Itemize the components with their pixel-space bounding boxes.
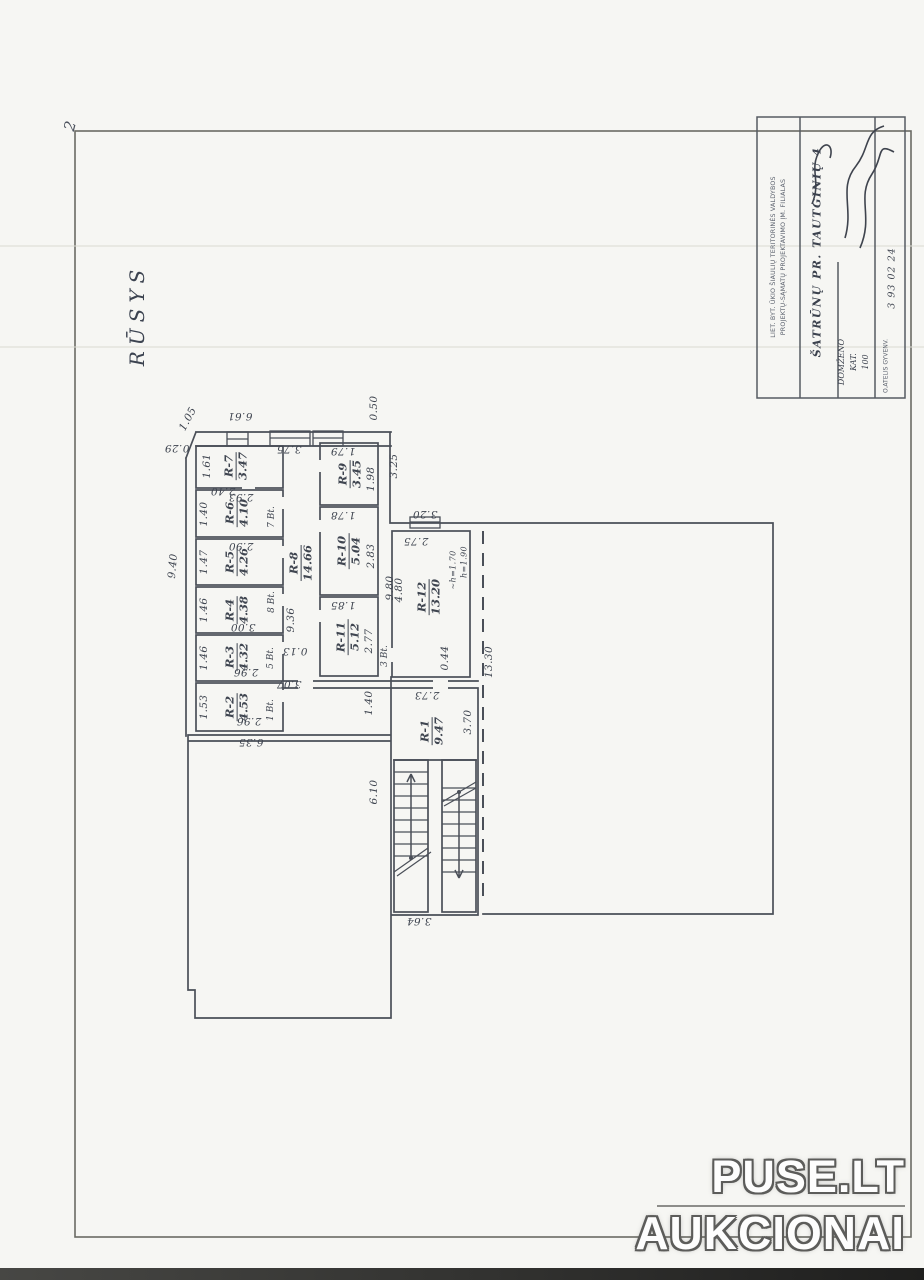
watermark: PUSE.LT AUKCIONAI [635,1152,905,1258]
doc-line-2: KAT. [848,339,860,385]
apartment-tag: 3 Bt. [380,645,390,667]
dimension-label: 1.98 [365,467,377,492]
room-label: R-93.45 [337,460,364,488]
dimension-label: 13.30 [483,646,495,678]
room-label: R-44.38 [224,596,251,624]
watermark-line1: PUSE.LT [711,1152,905,1202]
org-line-2: PROJEKTŲ-SĄMATŲ PROJEKTAVIMO ĮM. FILIALA… [779,176,789,337]
dimension-label: 1.61 [201,454,213,479]
titleblock-object-name: ŠATRŪNŲ PR. TAUTGINIŲ 4 [811,147,824,358]
dimension-label: ~h=1.70 [449,550,458,589]
dimension-label: 0.44 [439,646,451,671]
dimension-label: 2.93 [229,491,254,503]
dimension-label: 2.75 [404,535,429,547]
dimension-label: h=1.90 [460,546,469,578]
dimension-label: 2.73 [415,689,440,701]
doc-line-3: 100 [860,339,872,385]
room-label: R-1213.20 [416,579,443,615]
dimension-label: 3.70 [462,710,474,735]
apartment-tag: 8 Bt. [267,591,277,613]
doc-line-1: DOMŽENO [836,339,848,385]
dimension-label: 2.96 [234,666,259,678]
dimension-label: 3.75 [277,443,302,455]
org-line-1: LIET. BYT. ŪKIO ŠIAULIŲ TERITORINĖS VALD… [769,176,779,337]
dimension-label: 0.13 [283,645,308,657]
dimension-label: 2.83 [365,544,377,569]
titleblock-date: 3 93 02 24 [887,247,898,308]
titleblock-date-printed: O.ATELIS GYVENV. [883,339,890,393]
dimension-label: 1.46 [198,646,210,671]
apartment-tag: 7 Bt. [267,506,277,528]
dimension-label: 6.35 [239,736,264,748]
dimension-label: 3.00 [231,621,256,633]
scan-edge-bar [0,1268,924,1280]
dimension-label: 1.46 [198,598,210,623]
scanned-basement-floor-plan: RŪSYS 2 LIET. BYT. ŪKIO ŠIAULIŲ TERITORI… [0,0,924,1280]
dimension-label: 4.80 [393,578,405,603]
dimension-label: 1.53 [198,695,210,720]
dimension-label: 9.36 [285,608,297,633]
dimension-label: 6.10 [368,780,380,805]
plan-title: RŪSYS [125,264,149,367]
dimension-label: 3.64 [407,915,432,927]
dimension-label: 1.40 [198,502,210,527]
dimension-label: 3.25 [388,454,400,479]
room-label: R-54.26 [224,548,251,576]
room-label: R-105.04 [336,533,363,569]
dimension-label: 0.50 [368,396,380,421]
room-label: R-64.10 [224,499,251,527]
titleblock-organization: LIET. BYT. ŪKIO ŠIAULIŲ TERITORINĖS VALD… [769,176,789,337]
dimension-label: 1.78 [331,509,356,521]
staircase [394,772,476,878]
dimension-label: 1.79 [331,445,356,457]
room-label: R-19.47 [419,717,446,745]
dimension-label: 1.47 [198,550,210,575]
watermark-line2: AUKCIONAI [635,1208,905,1259]
room-label: R-73.47 [223,452,250,480]
apartment-tag: 1 Bt. [266,699,276,721]
dimension-label: 2.96 [237,715,262,727]
dimension-label: 9.40 [166,553,180,579]
dimension-label: 0.29 [165,442,190,454]
dimension-label: 6.61 [228,410,253,422]
room-label: R-115.12 [335,619,362,655]
signature-strokes [812,126,894,248]
dimension-label: 2.90 [229,540,254,552]
dimension-label: 3.20 [413,508,438,520]
dimension-label: 1.85 [331,599,356,611]
dimension-label: 2.77 [363,629,375,654]
room-label: R-814.66 [288,545,315,581]
dimension-label: 3.07 [277,678,302,690]
dimension-label: 1.40 [363,691,375,716]
apartment-tag: 5 Bt. [266,647,276,669]
titleblock-doc-cell: DOMŽENO KAT. 100 [836,339,872,385]
